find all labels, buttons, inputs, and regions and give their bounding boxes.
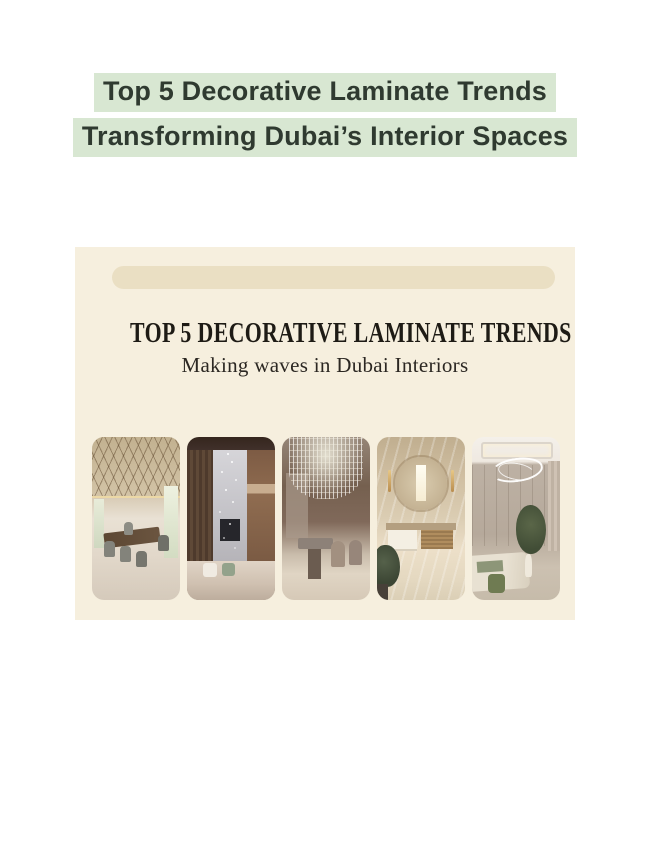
pillow bbox=[222, 563, 235, 576]
chair bbox=[158, 535, 169, 551]
chair bbox=[124, 522, 133, 535]
interior-photo-strip bbox=[92, 437, 560, 600]
tv-screen bbox=[220, 519, 239, 542]
double-height-living-room-photo bbox=[187, 437, 275, 600]
page-title-line-1: Top 5 Decorative Laminate Trends bbox=[0, 73, 650, 112]
curtain bbox=[548, 461, 560, 551]
deer-sculpture bbox=[525, 554, 532, 577]
crystal-chandelier bbox=[289, 437, 363, 499]
upholstered-chair bbox=[331, 541, 345, 567]
neutral-bedroom-photo bbox=[472, 437, 560, 600]
crystal-chandelier-dining-photo bbox=[282, 437, 370, 600]
plant bbox=[516, 505, 546, 554]
page-title-line-2-highlight: Transforming Dubai’s Interior Spaces bbox=[73, 118, 577, 157]
window bbox=[94, 499, 105, 548]
wood-mezzanine bbox=[247, 450, 275, 564]
sconce-light bbox=[451, 470, 454, 493]
banner-heading: TOP 5 DECORATIVE LAMINATE TRENDS bbox=[130, 320, 520, 348]
decorative-pill-bar bbox=[112, 266, 555, 289]
upholstered-chair bbox=[349, 540, 362, 565]
marble-tv-wall bbox=[213, 450, 246, 564]
marble-bathroom-vanity-photo bbox=[377, 437, 465, 600]
wood-slat-wall bbox=[187, 450, 213, 564]
chair bbox=[104, 541, 115, 557]
page-title-line-1-highlight: Top 5 Decorative Laminate Trends bbox=[94, 73, 556, 112]
ceiling-cove-light bbox=[481, 442, 554, 459]
page-title-line-2: Transforming Dubai’s Interior Spaces bbox=[0, 118, 650, 157]
floor-shadow bbox=[377, 584, 388, 600]
luxury-dining-room-photo bbox=[92, 437, 180, 600]
banner-subheading: Making waves in Dubai Interiors bbox=[75, 355, 575, 376]
ottoman-pouf bbox=[488, 574, 506, 594]
chair bbox=[120, 546, 131, 562]
vanity-counter bbox=[386, 523, 456, 530]
mirror-light-reflection bbox=[416, 465, 427, 501]
infographic-banner: TOP 5 DECORATIVE LAMINATE TRENDS Making … bbox=[75, 247, 575, 620]
table-pedestal bbox=[308, 549, 320, 578]
page-title: Top 5 Decorative Laminate Trends Transfo… bbox=[0, 73, 650, 163]
pillow bbox=[203, 563, 217, 578]
rattan-cabinet bbox=[421, 530, 453, 550]
dining-counter bbox=[298, 538, 333, 549]
chair bbox=[136, 551, 147, 567]
sconce-light bbox=[388, 470, 391, 493]
bed-throw bbox=[477, 560, 504, 573]
